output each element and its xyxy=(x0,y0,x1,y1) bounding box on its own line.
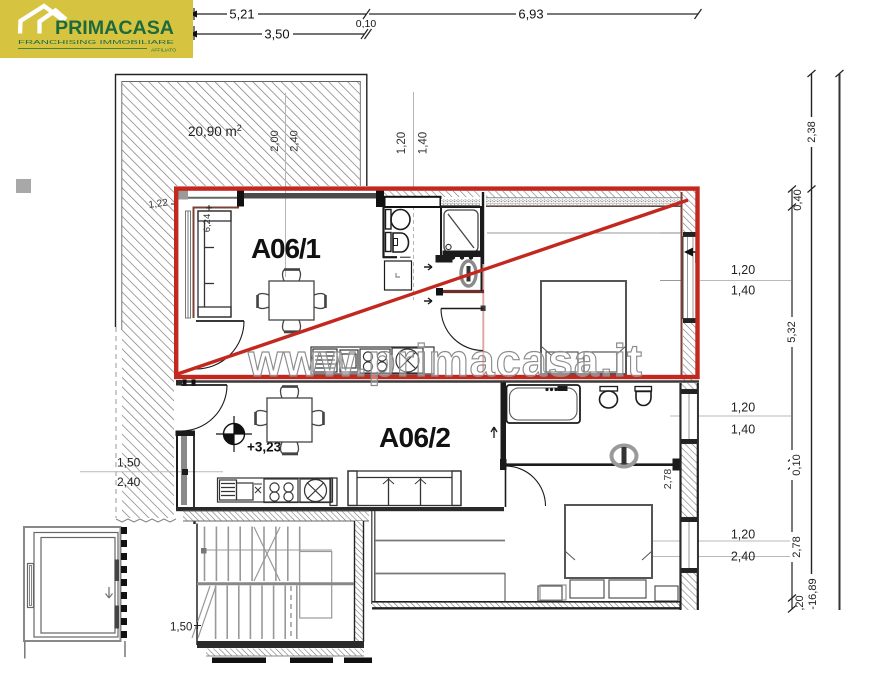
svg-text:6,93: 6,93 xyxy=(518,7,543,22)
svg-text:3,50: 3,50 xyxy=(264,27,289,42)
svg-text:6,24: 6,24 xyxy=(202,214,213,233)
svg-text:1,40: 1,40 xyxy=(731,423,755,437)
svg-text:www.primacasa.it: www.primacasa.it xyxy=(247,335,643,386)
svg-text:PRIMACASA: PRIMACASA xyxy=(55,17,174,39)
svg-text:5,32: 5,32 xyxy=(786,321,798,342)
svg-text:1,50: 1,50 xyxy=(117,456,141,470)
svg-text:2,38: 2,38 xyxy=(806,121,818,142)
svg-text:0,10: 0,10 xyxy=(356,18,377,30)
svg-text:2,40: 2,40 xyxy=(289,130,301,151)
svg-text:1,20: 1,20 xyxy=(731,528,755,542)
svg-text:2,40: 2,40 xyxy=(731,550,755,564)
svg-text:A06/1: A06/1 xyxy=(251,233,321,264)
svg-text:A06/2: A06/2 xyxy=(379,422,451,453)
svg-text:1,20: 1,20 xyxy=(731,263,755,277)
svg-text:FRANCHISING IMMOBILIARE: FRANCHISING IMMOBILIARE xyxy=(18,40,175,46)
svg-text:5,21: 5,21 xyxy=(229,7,254,22)
svg-text:2,78: 2,78 xyxy=(662,469,674,490)
svg-text:AFFILIATO: AFFILIATO xyxy=(151,48,176,54)
svg-text:1,20: 1,20 xyxy=(396,132,408,154)
svg-text:,20: ,20 xyxy=(794,595,806,610)
svg-text:0,40: 0,40 xyxy=(792,189,804,210)
svg-text:1,20: 1,20 xyxy=(731,401,755,415)
svg-text:1,40: 1,40 xyxy=(731,284,755,298)
svg-text:2,40: 2,40 xyxy=(117,475,141,489)
svg-text:2,00: 2,00 xyxy=(269,130,281,151)
svg-text:1,50: 1,50 xyxy=(170,622,192,634)
svg-text:2,78: 2,78 xyxy=(791,536,803,557)
svg-text:1,40: 1,40 xyxy=(418,132,430,154)
svg-text:0,10: 0,10 xyxy=(791,454,803,475)
svg-text:-16,89: -16,89 xyxy=(807,578,819,609)
svg-text:20,90 m2: 20,90 m2 xyxy=(188,123,242,139)
